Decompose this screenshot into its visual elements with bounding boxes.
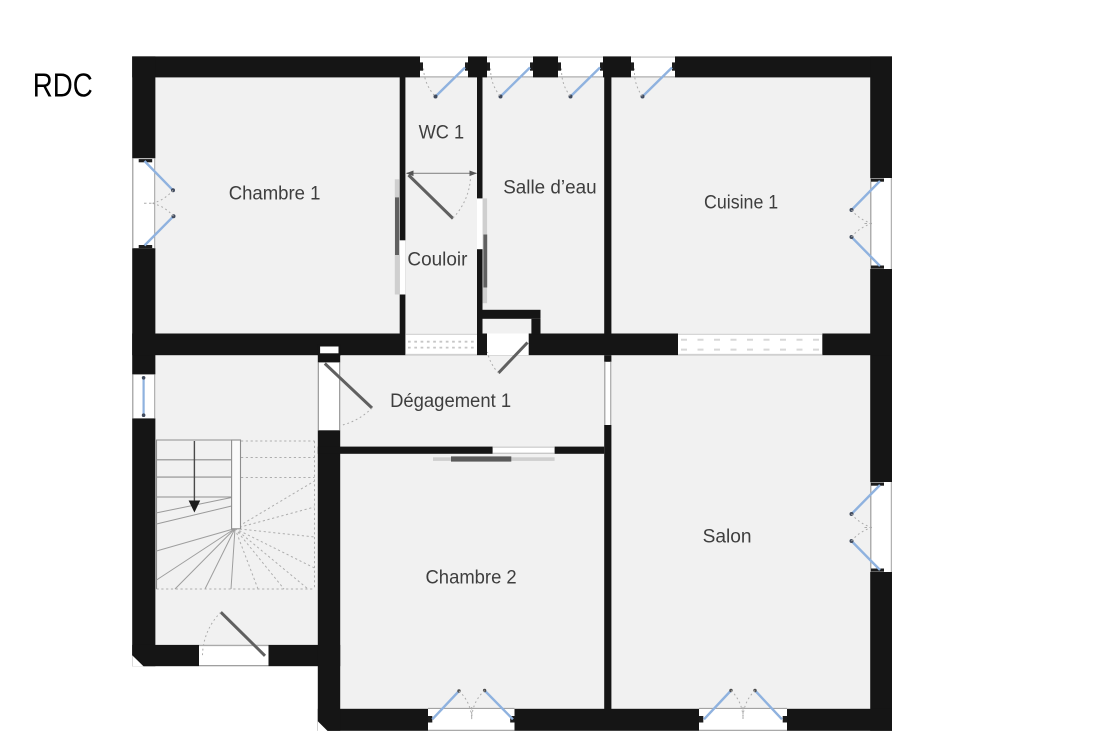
svg-text:WC 1: WC 1 — [419, 122, 465, 143]
svg-text:Chambre 1: Chambre 1 — [229, 183, 321, 204]
svg-text:Couloir: Couloir — [407, 250, 468, 271]
svg-text:Cuisine 1: Cuisine 1 — [704, 193, 778, 214]
svg-text:Salon: Salon — [703, 527, 752, 548]
svg-text:RDC: RDC — [33, 66, 93, 103]
svg-text:Chambre 2: Chambre 2 — [426, 568, 517, 589]
svg-text:Salle d’eau: Salle d’eau — [503, 177, 596, 198]
svg-text:Dégagement 1: Dégagement 1 — [390, 391, 511, 412]
